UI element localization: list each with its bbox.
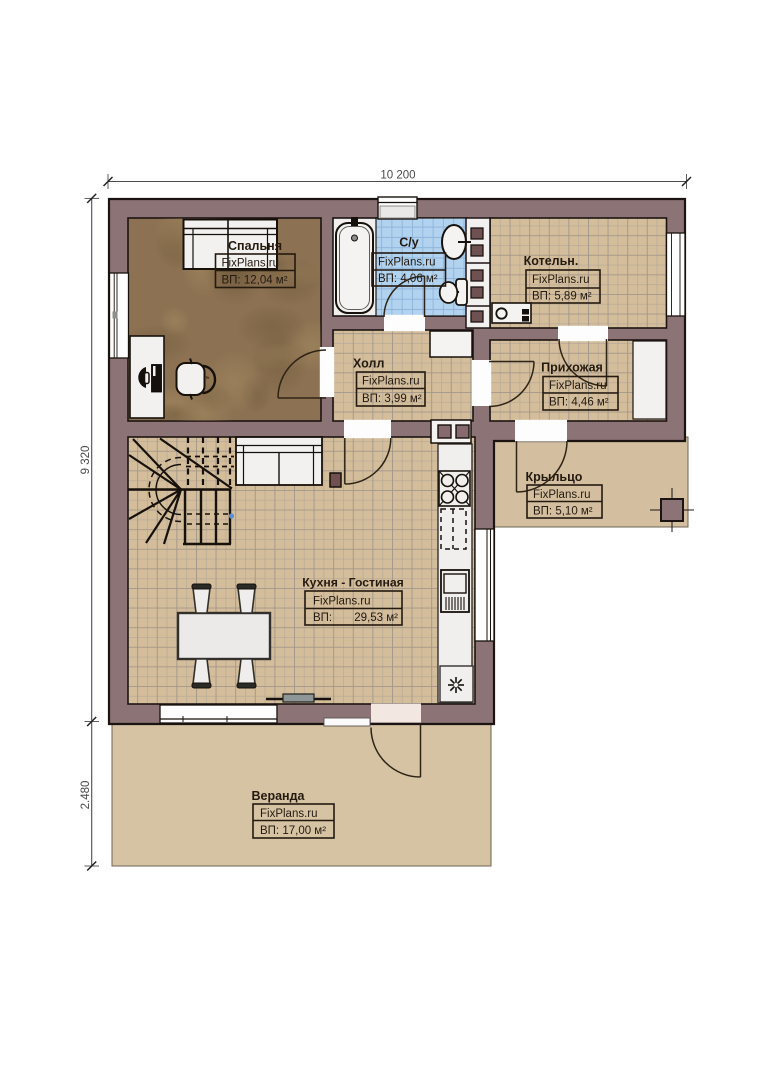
svg-text:Кухня - Гостиная: Кухня - Гостиная [302,576,404,590]
svg-text:FixPlans.ru: FixPlans.ru [222,258,280,270]
svg-text:ВП: 5,89 м²: ВП: 5,89 м² [532,291,592,303]
svg-text:ВП:: ВП: [313,612,332,624]
svg-text:ВП: 4,06 м²: ВП: 4,06 м² [378,273,438,285]
svg-text:Холл: Холл [353,357,384,371]
svg-text:Веранда: Веранда [251,789,305,803]
svg-text:ВП: 3,99 м²: ВП: 3,99 м² [362,393,422,405]
svg-text:FixPlans.ru: FixPlans.ru [533,489,591,501]
svg-text:FixPlans.ru: FixPlans.ru [260,808,318,820]
svg-text:ВП: 4,46 м²: ВП: 4,46 м² [549,397,609,409]
svg-text:FixPlans.ru: FixPlans.ru [549,380,607,392]
svg-text:10 200: 10 200 [380,170,415,182]
svg-text:С/у: С/у [399,236,419,250]
svg-text:FixPlans.ru: FixPlans.ru [378,257,436,269]
svg-text:Спальня: Спальня [228,239,282,253]
svg-text:2.480: 2.480 [80,781,92,810]
svg-text:ВП: 12,04 м²: ВП: 12,04 м² [222,275,288,287]
svg-text:FixPlans.ru: FixPlans.ru [362,376,420,388]
svg-text:ВП: 17,00 м²: ВП: 17,00 м² [260,825,326,837]
svg-text:Крыльцо: Крыльцо [526,470,583,484]
svg-text:ВП: 5,10 м²: ВП: 5,10 м² [533,506,593,518]
svg-text:9 320: 9 320 [80,446,92,475]
svg-text:FixPlans.ru: FixPlans.ru [313,596,371,608]
svg-text:Прихожая: Прихожая [541,361,603,375]
svg-text:29,53 м²: 29,53 м² [354,612,398,624]
svg-text:FixPlans.ru: FixPlans.ru [532,274,590,286]
svg-text:Котельн.: Котельн. [524,254,579,268]
